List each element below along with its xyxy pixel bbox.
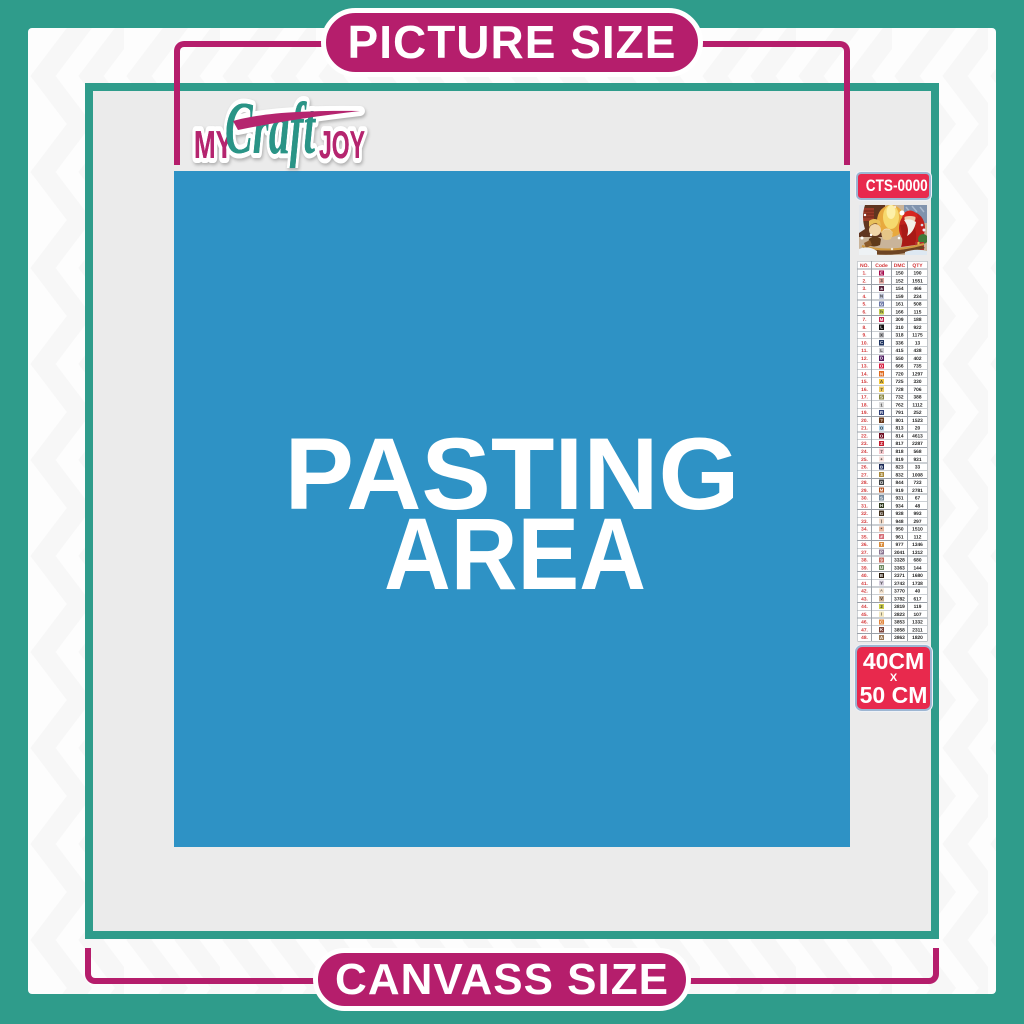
svg-text:5.: 5. (862, 301, 866, 307)
svg-text:Z: Z (880, 441, 883, 446)
svg-text:1820: 1820 (912, 635, 923, 641)
svg-text:112: 112 (914, 534, 922, 540)
svg-text:15.: 15. (861, 379, 868, 385)
svg-text:40: 40 (915, 588, 921, 594)
svg-text:938: 938 (895, 511, 903, 517)
svg-text:D: D (880, 355, 883, 360)
svg-text:297: 297 (913, 518, 921, 524)
svg-text:3858: 3858 (894, 627, 905, 633)
svg-text:119: 119 (914, 604, 922, 610)
svg-text:993: 993 (913, 511, 921, 517)
svg-text:M: M (880, 487, 884, 492)
svg-text:G: G (880, 510, 883, 515)
svg-text:733: 733 (913, 480, 921, 486)
svg-text:S: S (880, 495, 883, 500)
svg-text:3770: 3770 (894, 588, 905, 594)
svg-text:1175: 1175 (912, 332, 923, 338)
svg-text:3853: 3853 (894, 619, 905, 625)
svg-text:7.: 7. (862, 317, 866, 323)
svg-text:1551: 1551 (912, 278, 923, 284)
svg-text:159: 159 (895, 293, 903, 299)
svg-text:832: 832 (895, 472, 903, 478)
svg-text:813: 813 (895, 425, 903, 431)
svg-text:K: K (880, 627, 883, 632)
svg-text:823: 823 (895, 464, 903, 470)
svg-text:977: 977 (895, 542, 903, 548)
svg-text:415: 415 (895, 348, 903, 354)
svg-text:L: L (880, 347, 883, 352)
svg-text:115: 115 (914, 309, 922, 315)
svg-text:43.: 43. (861, 596, 868, 602)
svg-text:?: ? (880, 417, 883, 422)
svg-text:U: U (880, 565, 883, 570)
svg-text:791: 791 (895, 410, 903, 416)
svg-text:3.: 3. (862, 286, 866, 292)
svg-text:C: C (880, 619, 883, 624)
svg-text:16.: 16. (861, 386, 868, 392)
svg-text:1346: 1346 (912, 542, 923, 548)
svg-text:21.: 21. (861, 425, 868, 431)
svg-text:931: 931 (913, 456, 921, 462)
svg-text:706: 706 (913, 386, 921, 392)
svg-text:37.: 37. (861, 549, 868, 555)
svg-text:23.: 23. (861, 441, 868, 447)
svg-text:309: 309 (895, 317, 903, 323)
svg-text:QTY: QTY (912, 262, 923, 268)
svg-text:680: 680 (913, 557, 921, 563)
svg-text:318: 318 (895, 332, 903, 338)
svg-text:A: A (880, 634, 883, 639)
svg-text:310: 310 (895, 324, 903, 330)
svg-text:E: E (880, 270, 883, 275)
svg-text:1297: 1297 (912, 371, 923, 377)
svg-text:2781: 2781 (912, 487, 923, 493)
svg-text:32.: 32. (861, 511, 868, 517)
svg-text:3363: 3363 (894, 565, 905, 571)
svg-text:166: 166 (895, 309, 903, 315)
svg-text:H: H (880, 503, 883, 508)
svg-text:801: 801 (895, 417, 903, 423)
svg-text:N: N (880, 371, 883, 376)
svg-text:G: G (880, 301, 883, 306)
svg-text:152: 152 (895, 278, 903, 284)
svg-text:819: 819 (895, 456, 903, 462)
svg-text:728: 728 (895, 386, 903, 392)
svg-text:B: B (880, 464, 883, 469)
svg-text:919: 919 (895, 487, 903, 493)
svg-text:720: 720 (895, 371, 903, 377)
svg-text:144: 144 (913, 565, 921, 571)
svg-text:h: h (880, 309, 883, 314)
svg-text:1680: 1680 (912, 573, 923, 579)
svg-text:JOY: JOY (319, 124, 365, 167)
svg-text:33: 33 (915, 464, 921, 470)
svg-text:725: 725 (895, 379, 903, 385)
svg-text:6.: 6. (862, 309, 866, 315)
svg-text:9.: 9. (862, 332, 866, 338)
svg-text:13: 13 (915, 340, 921, 346)
svg-text:1.: 1. (862, 270, 866, 276)
svg-text:3823: 3823 (894, 611, 905, 617)
svg-text:844: 844 (895, 480, 903, 486)
svg-text:550: 550 (895, 355, 903, 361)
svg-text:3863: 3863 (894, 635, 905, 641)
svg-text:R: R (880, 410, 883, 415)
svg-text:107: 107 (913, 611, 921, 617)
svg-text:922: 922 (913, 324, 921, 330)
svg-text:336: 336 (895, 340, 903, 346)
svg-text:3782: 3782 (894, 596, 905, 602)
svg-text:48.: 48. (861, 635, 868, 641)
svg-text:14.: 14. (861, 371, 868, 377)
svg-text:732: 732 (895, 394, 903, 400)
svg-text:3328: 3328 (894, 557, 905, 563)
svg-text:1510: 1510 (912, 526, 923, 532)
svg-text:36.: 36. (861, 542, 868, 548)
svg-text:13.: 13. (861, 363, 868, 369)
svg-text:L: L (880, 324, 883, 329)
svg-text:A: A (880, 379, 883, 384)
svg-text:39.: 39. (861, 565, 868, 571)
svg-text:2.: 2. (862, 278, 866, 284)
svg-text:818: 818 (895, 449, 903, 455)
svg-text:26.: 26. (861, 464, 868, 470)
svg-text:12.: 12. (861, 355, 868, 361)
svg-text:3041: 3041 (894, 549, 905, 555)
svg-text:3743: 3743 (894, 580, 905, 586)
svg-text:NO.: NO. (860, 262, 870, 268)
svg-text:10.: 10. (861, 340, 868, 346)
svg-text:466: 466 (913, 286, 921, 292)
svg-text:1008: 1008 (912, 472, 923, 478)
svg-text:47.: 47. (861, 627, 868, 633)
svg-text:817: 817 (895, 441, 903, 447)
svg-text:31.: 31. (861, 503, 868, 509)
svg-text:X: X (880, 332, 883, 337)
svg-text:188: 188 (913, 317, 921, 323)
svg-text:45.: 45. (861, 611, 868, 617)
svg-text:330: 330 (913, 379, 921, 385)
svg-text:46.: 46. (861, 619, 868, 625)
svg-text:N: N (880, 293, 883, 298)
svg-text:20: 20 (915, 425, 921, 431)
svg-text:AREA: AREA (384, 497, 646, 611)
svg-text:C: C (880, 340, 883, 345)
svg-text:931: 931 (895, 495, 903, 501)
svg-text:27.: 27. (861, 472, 868, 478)
svg-text:T: T (880, 541, 883, 546)
svg-text:40.: 40. (861, 573, 868, 579)
svg-text:961: 961 (895, 534, 903, 540)
svg-text:3819: 3819 (894, 604, 905, 610)
svg-text:150: 150 (895, 270, 903, 276)
svg-text:30.: 30. (861, 495, 868, 501)
svg-text:Code: Code (875, 262, 888, 268)
svg-text:154: 154 (895, 286, 903, 292)
svg-text:1112: 1112 (912, 402, 922, 408)
svg-text:48: 48 (915, 503, 921, 509)
svg-text:67: 67 (915, 495, 921, 501)
svg-text:4613: 4613 (912, 433, 923, 439)
svg-text:24.: 24. (861, 449, 868, 455)
svg-text:17.: 17. (861, 394, 868, 400)
svg-text:1738: 1738 (912, 580, 923, 586)
svg-text:666: 666 (895, 363, 903, 369)
svg-text:38.: 38. (861, 557, 868, 563)
svg-text:11.: 11. (861, 348, 867, 354)
svg-text:234: 234 (913, 293, 921, 299)
svg-text:3371: 3371 (894, 573, 905, 579)
svg-text:814: 814 (895, 433, 903, 439)
svg-text:934: 934 (895, 503, 903, 509)
svg-text:B: B (880, 572, 883, 577)
svg-text:617: 617 (913, 596, 921, 602)
svg-text:1523: 1523 (912, 417, 923, 423)
svg-text:DMC: DMC (894, 262, 906, 268)
svg-text:508: 508 (913, 301, 921, 307)
svg-text:2311: 2311 (912, 627, 923, 633)
svg-text:34.: 34. (861, 526, 868, 532)
svg-text:735: 735 (913, 363, 921, 369)
svg-text:1332: 1332 (912, 619, 923, 625)
svg-text:19.: 19. (861, 410, 868, 416)
svg-text:P: P (880, 549, 883, 554)
svg-text:Craft: Craft (225, 95, 316, 168)
svg-text:438: 438 (913, 348, 921, 354)
svg-text:Y: Y (880, 580, 883, 585)
svg-text:18.: 18. (861, 402, 868, 408)
svg-text:44.: 44. (861, 604, 868, 610)
svg-text:35.: 35. (861, 534, 868, 540)
svg-text:8.: 8. (862, 324, 866, 330)
svg-text:20.: 20. (861, 417, 868, 423)
svg-text:948: 948 (895, 518, 903, 524)
svg-text:41.: 41. (861, 580, 868, 586)
svg-text:161: 161 (895, 301, 903, 307)
svg-text:V: V (880, 596, 883, 601)
svg-text:568: 568 (913, 449, 921, 455)
svg-text:190: 190 (913, 270, 921, 276)
svg-text:762: 762 (895, 402, 903, 408)
svg-text:4.: 4. (862, 293, 866, 299)
svg-text:2287: 2287 (912, 441, 923, 447)
svg-text:252: 252 (913, 410, 921, 416)
svg-text:42.: 42. (861, 588, 868, 594)
svg-text:29.: 29. (861, 487, 868, 493)
svg-text:S: S (880, 394, 883, 399)
svg-text:950: 950 (895, 526, 903, 532)
svg-text:28.: 28. (861, 480, 868, 486)
svg-text:33.: 33. (861, 518, 868, 524)
svg-text:25.: 25. (861, 456, 868, 462)
svg-text:1312: 1312 (912, 549, 923, 555)
svg-text:402: 402 (913, 355, 921, 361)
svg-text:M: M (880, 316, 884, 321)
svg-text:388: 388 (913, 394, 921, 400)
svg-text:22.: 22. (861, 433, 868, 439)
